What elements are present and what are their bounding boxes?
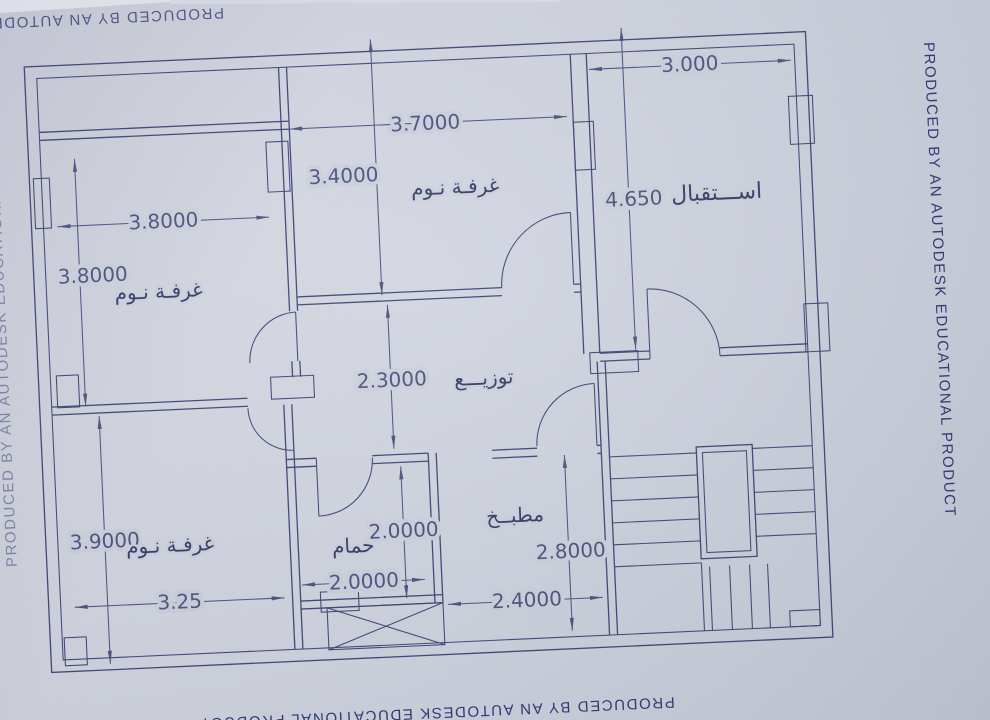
bottom-bedroom-right-wall [284,404,303,649]
dim-text-reception-width: 3.000 [661,51,719,78]
room-label-reception: اســـتقبال [671,179,763,208]
wall-notch-left [56,375,79,408]
watermark-bottom: PRODUCED BY AN AUTODESK EDUCATIONAL PROD… [199,693,675,720]
balcony-strip-walls [37,67,290,140]
room-label-hall: توزيـــع [454,364,514,391]
door-bathroom [316,456,375,516]
dim-text-bathroom-width: 2.0000 [328,568,399,595]
window-reception-left [573,121,595,170]
room-labels: غرفـة نـوم اســـتقبال غرفـة نـوم توزيـــ… [110,161,778,568]
staircase [609,442,820,635]
reception-left-wall [570,54,600,354]
dim-text-hall-height: 2.3000 [356,366,427,393]
dim-text-top-bedroom-width: 3.7000 [390,109,461,136]
corner-step-bottom-left [64,637,87,666]
duct-shaft [320,587,445,650]
dim-text-bottom-bedroom-width: 3.25 [157,589,203,615]
hall-door-jamb [271,375,315,399]
stair-lower-flight [701,560,770,631]
scanned-floor-plan-photo: PRODUCED BY AN AUTODESK EDUCATIONAL PROD… [0,0,990,720]
room-label-kitchen: مطبــخ [486,502,545,529]
door-kitchen [534,384,597,449]
room-label-bedroom-bottom: غرفـة نـوم [125,531,214,559]
dim-text-top-bedroom-height: 3.4000 [308,162,379,189]
window-bedroom-divider [266,141,290,192]
stair-treads-right [752,446,816,537]
stair-core-inner [702,451,750,553]
reception-bottom-wall [600,344,808,361]
floor-plan-svg: PRODUCED BY AN AUTODESK EDUCATIONAL PROD… [0,0,990,720]
kitchen-top-wall [492,445,601,458]
dim-text-left-bedroom-width: 3.8000 [128,207,199,234]
room-label-bedroom-top: غرفـة نـوم [411,173,500,201]
doors [240,206,727,519]
door-bottom-bedroom [248,406,294,452]
stair-treads-left [610,453,702,567]
room-label-bedroom-left: غرفـة نـوم [114,277,203,305]
stair-corner-step [790,610,821,627]
watermark-left-fragment: PRODUCED BY AN AUTODESK EDUCATIONAL PROD… [0,91,21,567]
watermark-right: PRODUCED BY AN AUTODESK EDUCATIONAL PROD… [920,42,959,518]
top-bedroom-bottom-wall [297,284,581,305]
dim-text-kitchen-width: 2.4000 [491,586,562,613]
dim-text-kitchen-height: 2.8000 [535,537,606,564]
bottom-bedroom-top-wall [52,398,248,415]
paper-edge-highlight-right [170,0,560,4]
door-hall-upper [248,312,298,363]
stair-core-outer [696,444,757,558]
shaft-x-cross [327,603,445,650]
paper-tilt-group: PRODUCED BY AN AUTODESK EDUCATIONAL PROD… [0,0,967,720]
door-reception [647,286,720,359]
door-top-bedroom [498,212,573,287]
stairwell-left-wall [597,361,617,635]
dim-text-reception-height: 4.650 [605,185,663,212]
interior-walls [37,44,821,660]
room-label-bathroom: حمام [332,533,375,559]
dim-text-bathroom-height: 2.0000 [368,517,439,544]
left-bedroom-right-wall [281,129,300,377]
